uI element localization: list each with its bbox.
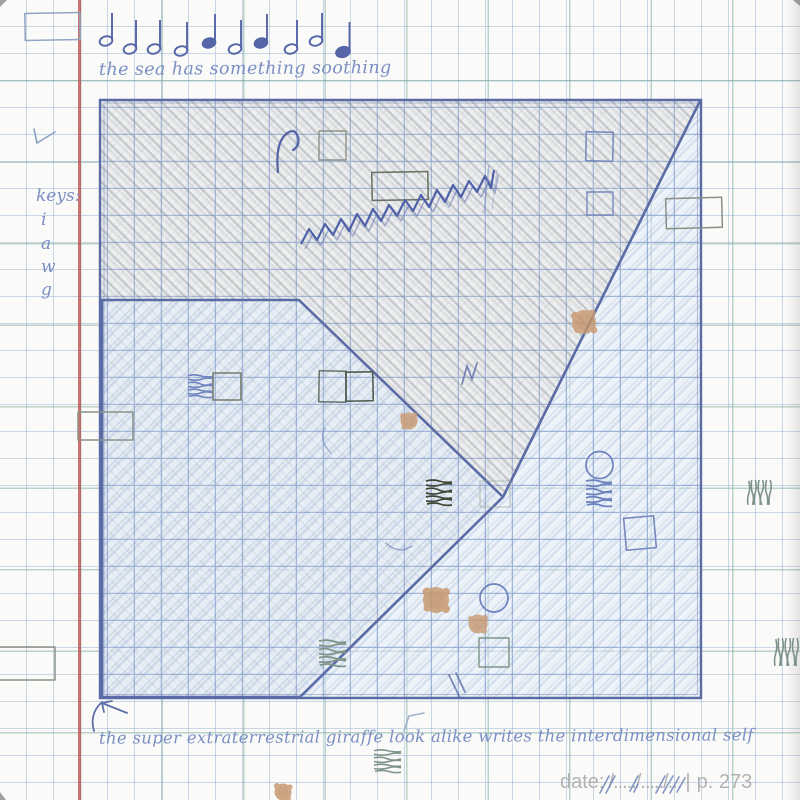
date-scribble-layer — [0, 0, 800, 800]
notebook-page: the sea has something soothing keys: i a… — [0, 0, 800, 800]
date-scribble — [600, 776, 685, 793]
